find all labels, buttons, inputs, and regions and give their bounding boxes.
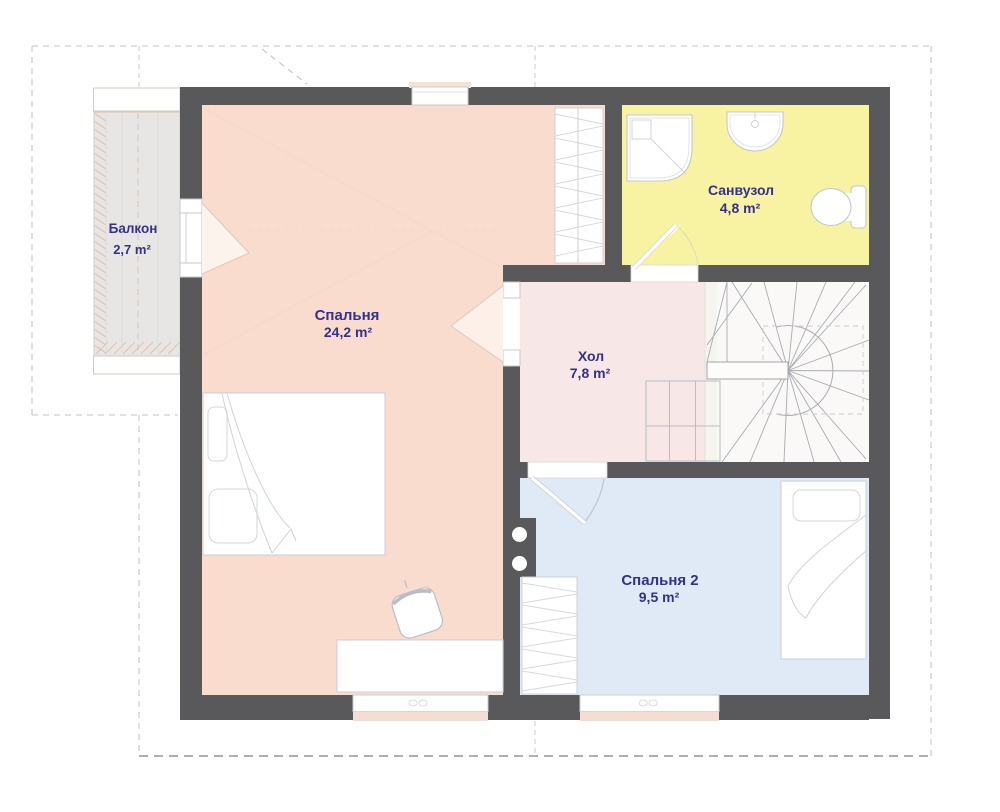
svg-text:9,5 m²: 9,5 m² <box>639 589 680 605</box>
svg-text:2,7 m²: 2,7 m² <box>113 242 151 257</box>
svg-text:24,2 m²: 24,2 m² <box>324 324 373 340</box>
svg-text:Балкон: Балкон <box>109 221 158 236</box>
svg-text:Спальня: Спальня <box>315 307 380 324</box>
svg-text:4,8 m²: 4,8 m² <box>720 200 761 216</box>
svg-text:7,8 m²: 7,8 m² <box>570 365 611 381</box>
svg-text:Хол: Хол <box>578 348 604 364</box>
svg-text:Спальня 2: Спальня 2 <box>621 572 698 589</box>
svg-text:Санвузол: Санвузол <box>708 182 774 198</box>
